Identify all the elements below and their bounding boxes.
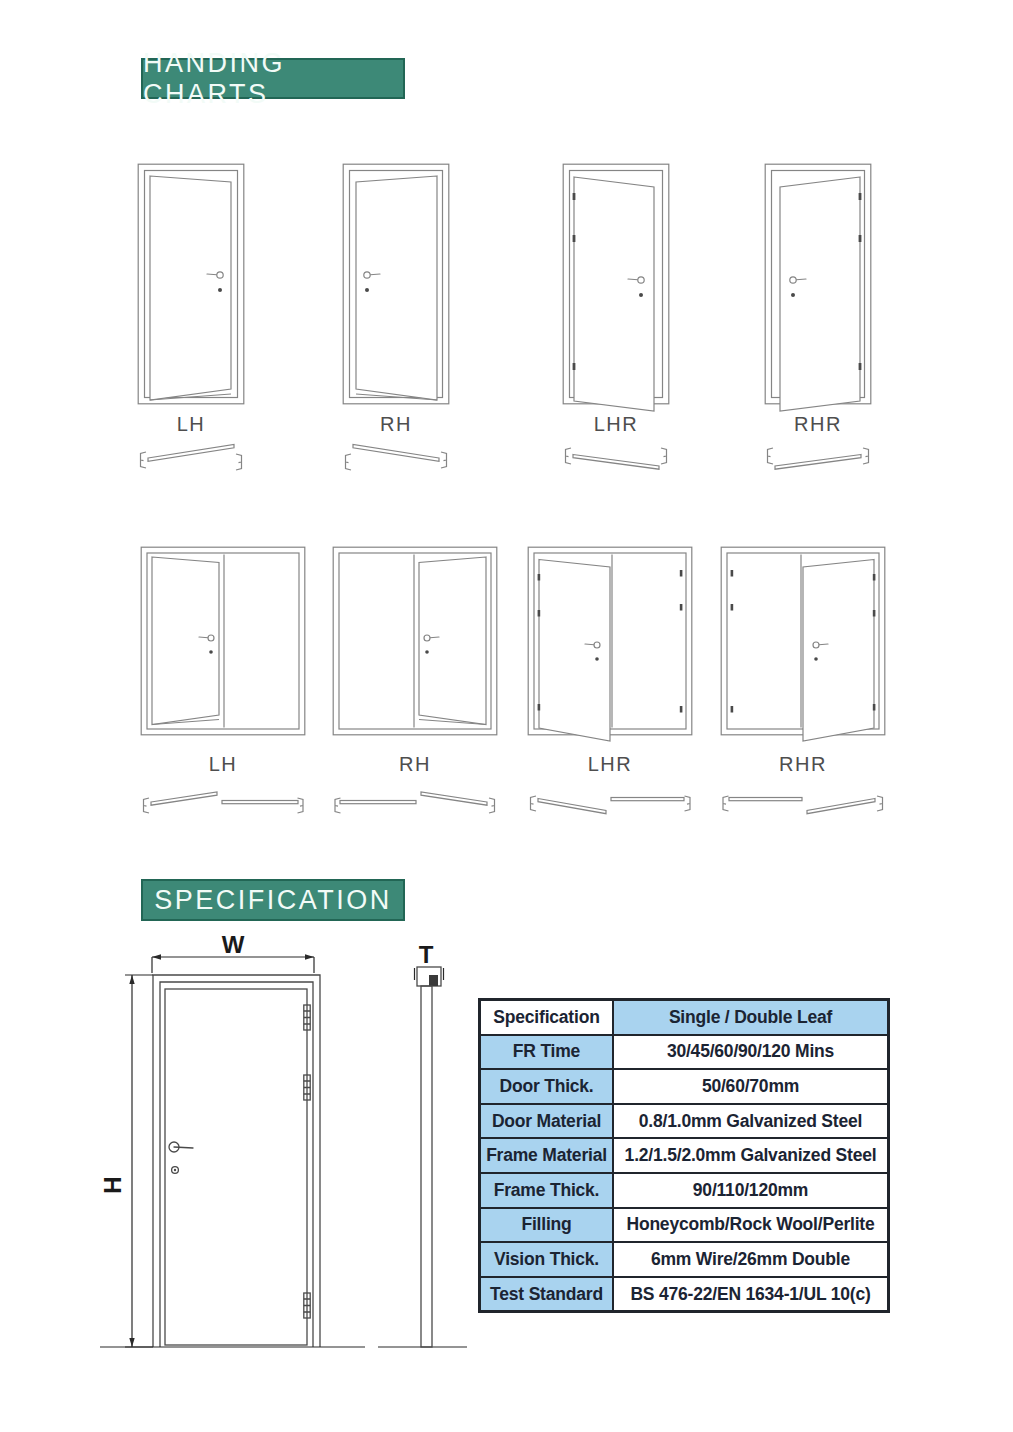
table-row: Vision Thick. 6mm Wire/26mm Double	[480, 1242, 889, 1277]
single-door-plan-lhr	[562, 441, 670, 475]
specification-banner: SPECIFICATION	[141, 879, 405, 921]
single-door-drawing-lh	[137, 163, 245, 415]
double-door-drawing-rhr	[720, 546, 886, 746]
double-door-plan-rh	[332, 789, 498, 823]
table-row: FR Time 30/45/60/90/120 Mins	[480, 1035, 889, 1070]
door-edge-profile	[421, 986, 432, 1347]
double-door-figure-rh: RH	[332, 546, 498, 836]
double-door-label-rh: RH	[332, 753, 498, 776]
arrowhead	[152, 954, 161, 959]
spec-value-cell: Honeycomb/Rock Wool/Perlite	[613, 1208, 889, 1243]
double-door-plan-rhr	[720, 789, 886, 823]
thickness-dimension-label: T	[419, 941, 434, 968]
spec-label-cell: Door Material	[480, 1104, 614, 1139]
spec-label-cell: Vision Thick.	[480, 1242, 614, 1277]
single-door-plan-rh	[342, 441, 450, 475]
double-door-label-lhr: LHR	[527, 753, 693, 776]
spec-value-cell: 6mm Wire/26mm Double	[613, 1242, 889, 1277]
door-leaf-front	[165, 989, 307, 1345]
spec-label-cell: FR Time	[480, 1035, 614, 1070]
spec-label-cell: Test Standard	[480, 1277, 614, 1312]
table-row: Door Thick. 50/60/70mm	[480, 1069, 889, 1104]
door-spec-sheet: HANDING CHARTS LH RH LHR RHR LH RH LHR	[0, 0, 1013, 1432]
single-door-label-rh: RH	[342, 413, 450, 436]
handing-charts-title: HANDING CHARTS	[143, 48, 403, 110]
spec-value-cell: 1.2/1.5/2.0mm Galvanized Steel	[613, 1138, 889, 1173]
single-door-plan-rhr	[764, 441, 872, 475]
arrowhead	[129, 975, 134, 984]
height-dimension-line	[125, 975, 153, 1347]
single-door-label-lhr: LHR	[562, 413, 670, 436]
double-door-figure-lh: LH	[140, 546, 306, 836]
single-door-drawing-lhr	[562, 163, 670, 415]
single-door-drawing-rhr	[764, 163, 872, 415]
door-keyhole-dot	[174, 1169, 176, 1171]
door-handle-lever	[174, 1147, 193, 1148]
double-door-drawing-rh	[332, 546, 498, 746]
double-door-label-rhr: RHR	[720, 753, 886, 776]
spec-label-cell: Frame Thick.	[480, 1173, 614, 1208]
table-row: Test Standard BS 476-22/EN 1634-1/UL 10(…	[480, 1277, 889, 1312]
height-dimension-label: H	[99, 1176, 126, 1193]
spec-value-cell: 90/110/120mm	[613, 1173, 889, 1208]
handing-charts-banner: HANDING CHARTS	[141, 58, 405, 99]
arrowhead	[129, 1338, 134, 1347]
single-door-label-lh: LH	[137, 413, 245, 436]
double-door-plan-lhr	[527, 789, 693, 823]
spec-label-cell: Filling	[480, 1208, 614, 1243]
door-dimension-diagram: W H T	[95, 935, 470, 1365]
spec-value-cell: 50/60/70mm	[613, 1069, 889, 1104]
spec-value-cell: BS 476-22/EN 1634-1/UL 10(c)	[613, 1277, 889, 1312]
spec-label-cell: Door Thick.	[480, 1069, 614, 1104]
single-door-figure-rhr: RHR	[764, 163, 872, 483]
double-door-figure-rhr: RHR	[720, 546, 886, 836]
width-dimension-label: W	[222, 935, 245, 958]
spec-value-cell: 30/45/60/90/120 Mins	[613, 1035, 889, 1070]
specification-table: Specification Single / Double Leaf FR Ti…	[478, 998, 890, 1313]
single-door-drawing-rh	[342, 163, 450, 415]
double-door-label-lh: LH	[140, 753, 306, 776]
table-row: Frame Thick. 90/110/120mm	[480, 1173, 889, 1208]
double-door-drawing-lhr	[527, 546, 693, 746]
spec-value-cell: Single / Double Leaf	[613, 1000, 889, 1035]
table-row: Frame Material 1.2/1.5/2.0mm Galvanized …	[480, 1138, 889, 1173]
spec-label-cell: Specification	[480, 1000, 614, 1035]
frame-head-seal	[429, 975, 438, 986]
single-door-figure-lh: LH	[137, 163, 245, 483]
double-door-figure-lhr: LHR	[527, 546, 693, 836]
specification-title: SPECIFICATION	[154, 885, 392, 916]
spec-value-cell: 0.8/1.0mm Galvanized Steel	[613, 1104, 889, 1139]
single-door-figure-lhr: LHR	[562, 163, 670, 483]
single-door-label-rhr: RHR	[764, 413, 872, 436]
double-door-plan-lh	[140, 789, 306, 823]
table-row: Specification Single / Double Leaf	[480, 1000, 889, 1035]
width-dimension-line	[152, 957, 314, 973]
table-row: Filling Honeycomb/Rock Wool/Perlite	[480, 1208, 889, 1243]
frame-inner-outline	[160, 982, 313, 1347]
arrowhead	[305, 954, 314, 959]
frame-outline	[153, 975, 320, 1347]
spec-label-cell: Frame Material	[480, 1138, 614, 1173]
double-door-drawing-lh	[140, 546, 306, 746]
table-row: Door Material 0.8/1.0mm Galvanized Steel	[480, 1104, 889, 1139]
single-door-figure-rh: RH	[342, 163, 450, 483]
single-door-plan-lh	[137, 441, 245, 475]
